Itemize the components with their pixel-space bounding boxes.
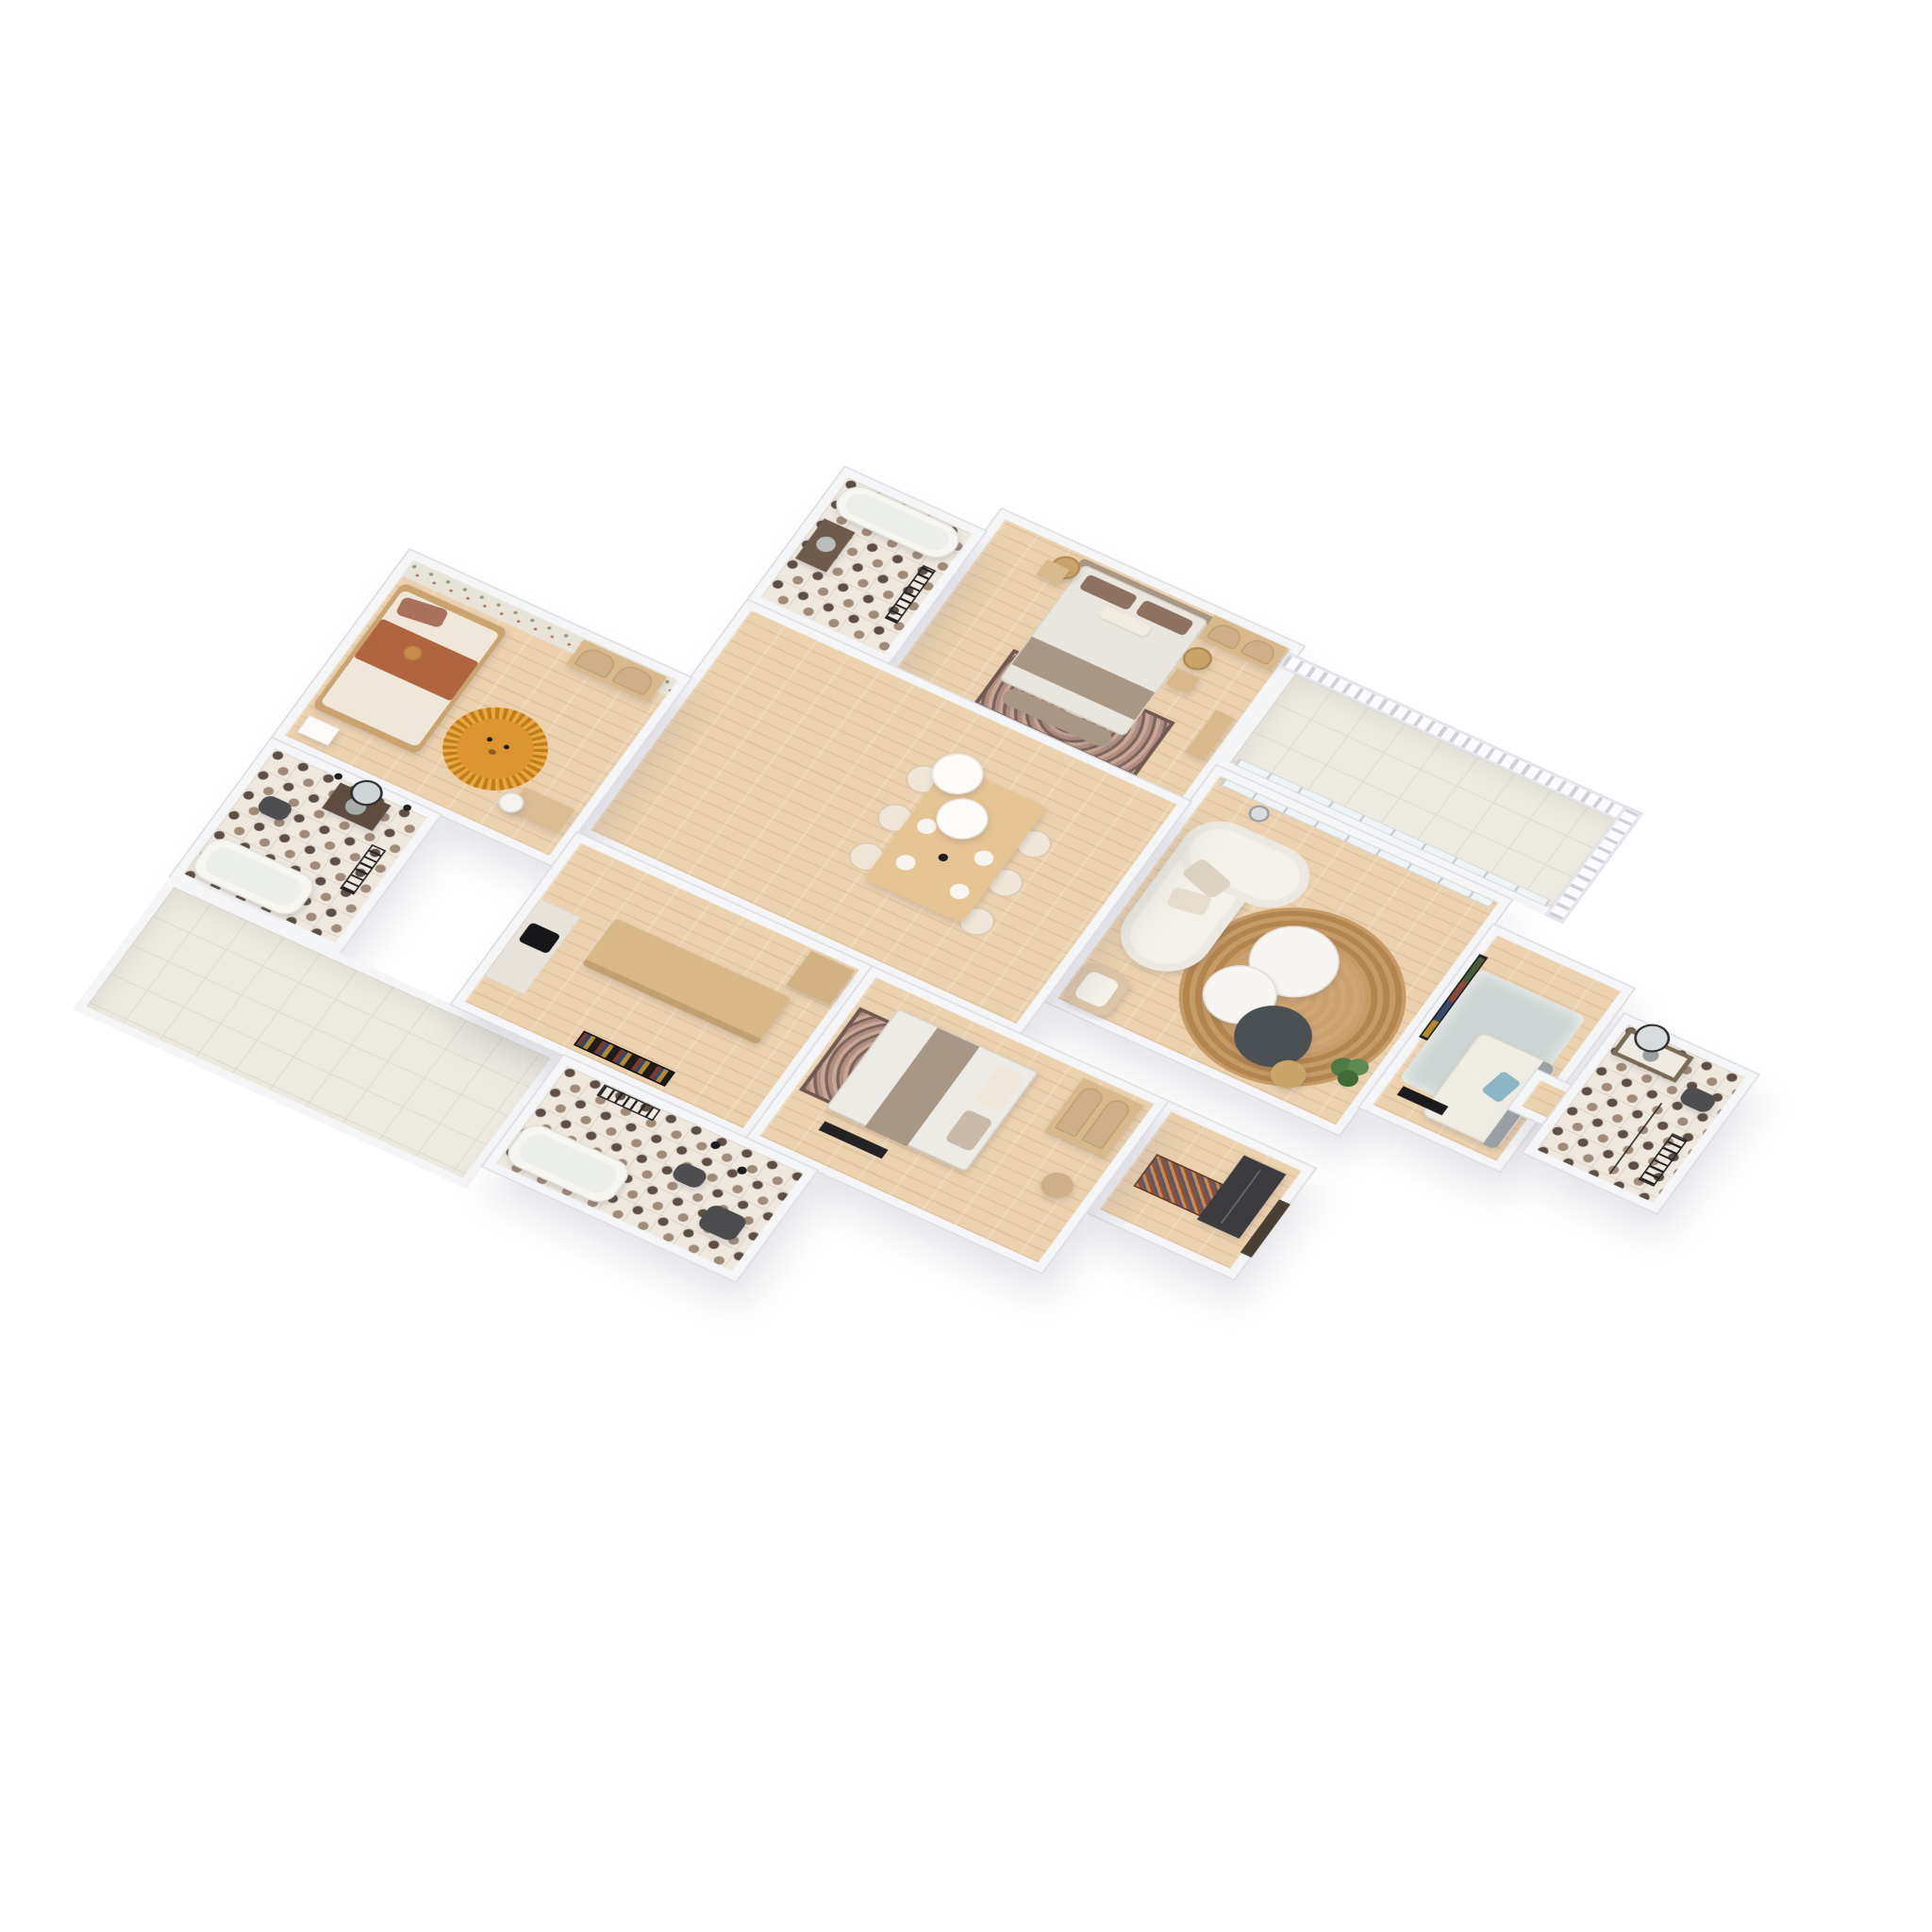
wardrobe-arch-door bbox=[1206, 621, 1246, 650]
plate bbox=[971, 848, 997, 869]
black-sink bbox=[518, 922, 561, 954]
round-side-table bbox=[1035, 1168, 1079, 1203]
towel-ladder bbox=[1639, 1133, 1689, 1187]
bathtub-basin bbox=[841, 490, 955, 555]
lion-eye bbox=[503, 744, 510, 750]
armchair-cushion bbox=[1073, 970, 1121, 1008]
floor-plan-scene bbox=[45, 305, 1888, 1604]
towel-ladder bbox=[340, 844, 386, 895]
arched-wardrobes bbox=[565, 640, 667, 703]
kitchen-island bbox=[582, 918, 791, 1044]
vanity-seat bbox=[695, 1203, 749, 1242]
wall-sconce bbox=[402, 804, 413, 812]
toilet bbox=[670, 1160, 710, 1190]
wash-basin bbox=[813, 534, 840, 555]
arched-wardrobe bbox=[1044, 1077, 1143, 1158]
wall-sconce bbox=[735, 1165, 748, 1175]
nightstand bbox=[1166, 669, 1200, 694]
canvas bbox=[0, 0, 1932, 1932]
toilet bbox=[1677, 1085, 1719, 1115]
wardrobe-arch-door bbox=[1240, 636, 1280, 665]
closet-handle bbox=[1221, 1170, 1261, 1224]
bath-vanity bbox=[795, 519, 856, 573]
nightstand-white bbox=[297, 715, 341, 746]
pillow bbox=[944, 1109, 993, 1153]
plate bbox=[946, 881, 973, 902]
table-decor bbox=[937, 852, 950, 862]
toilet bbox=[255, 793, 295, 823]
lion-nose bbox=[488, 748, 498, 756]
bathtub-basin bbox=[514, 1130, 622, 1197]
wall-sconce bbox=[333, 772, 344, 780]
pillow bbox=[973, 1065, 1026, 1114]
balcony-railing-side bbox=[1545, 806, 1642, 923]
bathtub bbox=[501, 1120, 636, 1207]
rattan-armchair bbox=[1059, 959, 1134, 1019]
wall-sconce bbox=[708, 1140, 722, 1150]
bathtub bbox=[828, 480, 968, 564]
lion-rug-center bbox=[443, 708, 547, 791]
tall-cabinet bbox=[786, 951, 855, 1005]
kitchen-counter bbox=[483, 899, 580, 995]
plate bbox=[892, 852, 919, 873]
lion-eye bbox=[486, 736, 493, 741]
